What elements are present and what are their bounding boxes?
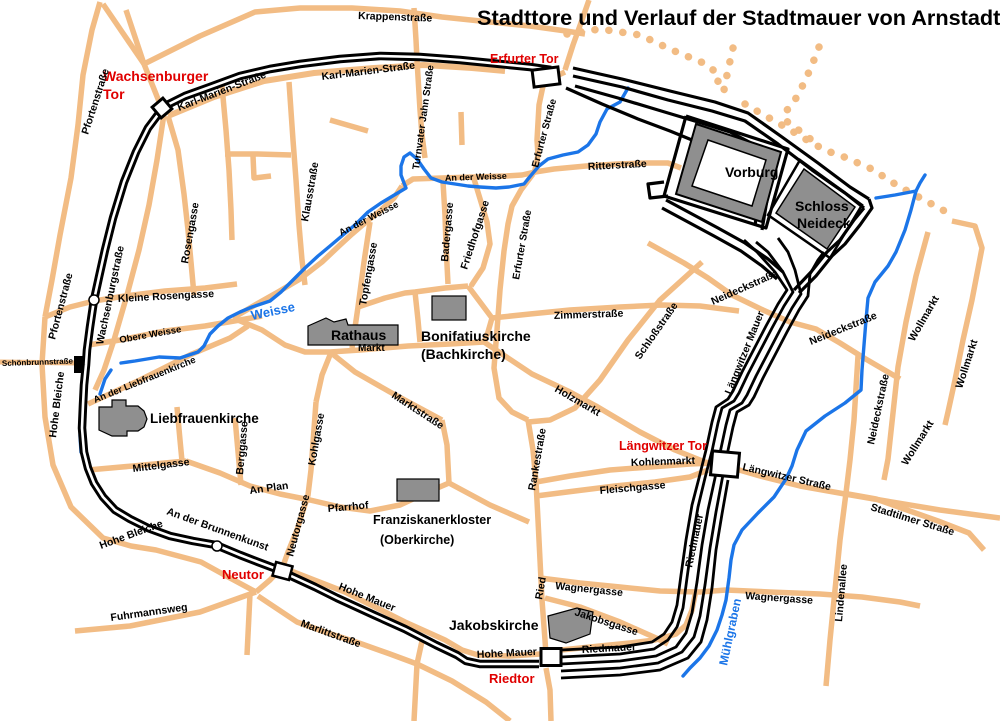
svg-text:Rathaus: Rathaus: [331, 327, 386, 343]
svg-text:Tor: Tor: [103, 86, 125, 102]
svg-text:Franziskanerkloster: Franziskanerkloster: [373, 513, 491, 527]
svg-text:Riedtor: Riedtor: [489, 671, 535, 686]
svg-text:Kohlenmarkt: Kohlenmarkt: [631, 455, 696, 469]
svg-text:Schloss: Schloss: [795, 198, 849, 214]
svg-text:Erfurter Tor: Erfurter Tor: [490, 52, 559, 66]
svg-text:Bonifatiuskirche: Bonifatiuskirche: [421, 328, 531, 344]
svg-text:Wachsenburger: Wachsenburger: [103, 68, 209, 84]
svg-text:Jakobskirche: Jakobskirche: [449, 617, 539, 633]
svg-text:Neideck: Neideck: [797, 215, 851, 231]
svg-text:Stadttore und Verlauf der Stad: Stadttore und Verlauf der Stadtmauer von…: [477, 5, 1000, 30]
svg-text:(Bachkirche): (Bachkirche): [421, 346, 506, 362]
svg-text:(Oberkirche): (Oberkirche): [380, 533, 454, 547]
svg-text:Zimmerstraße: Zimmerstraße: [554, 308, 624, 322]
svg-text:Markt: Markt: [358, 343, 385, 354]
svg-text:Neutor: Neutor: [222, 567, 264, 582]
svg-text:Längwitzer Tor: Längwitzer Tor: [619, 439, 707, 453]
svg-text:Vorburg: Vorburg: [725, 164, 778, 180]
